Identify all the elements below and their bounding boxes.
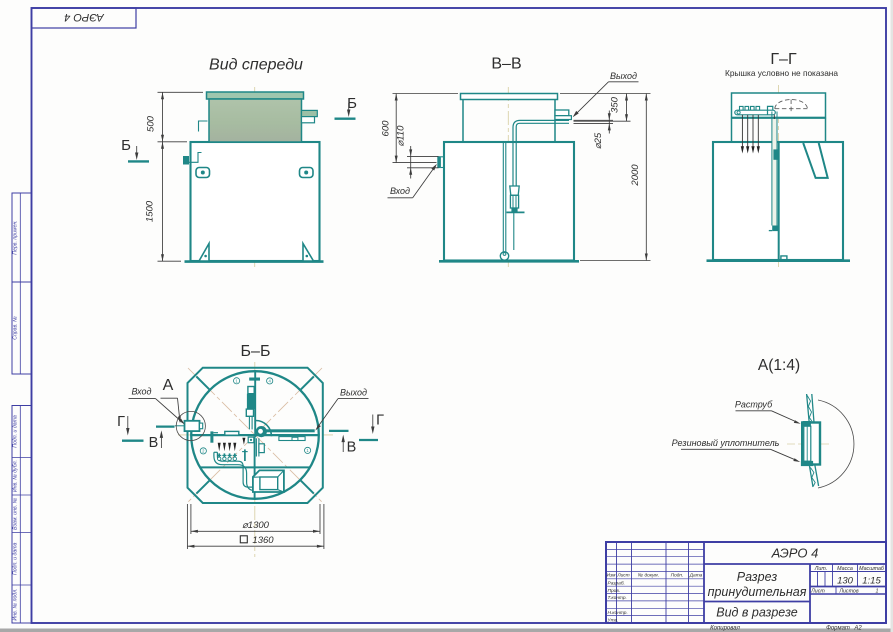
svg-text:Утв.: Утв. — [608, 617, 619, 623]
svg-text:Разрез: Разрез — [737, 570, 778, 584]
svg-text:Н.контр.: Н.контр. — [608, 610, 628, 616]
svg-text:Масса: Масса — [837, 566, 853, 572]
svg-text:1500: 1500 — [145, 200, 156, 222]
svg-text:Разраб.: Разраб. — [608, 581, 625, 587]
svg-text:Вид спереди: Вид спереди — [209, 57, 303, 74]
svg-text:Б–Б: Б–Б — [241, 343, 271, 360]
svg-text:Изм: Изм — [607, 573, 617, 579]
svg-text:А: А — [163, 377, 174, 394]
svg-text:Резиновый уплотнитель: Резиновый уплотнитель — [672, 438, 780, 448]
svg-text:Г: Г — [117, 414, 125, 430]
svg-text:Подп. и дата: Подп. и дата — [12, 542, 18, 575]
svg-text:Вход: Вход — [131, 387, 151, 397]
svg-text:600: 600 — [381, 120, 392, 137]
svg-text:Б: Б — [121, 137, 131, 154]
svg-text:350: 350 — [610, 96, 621, 113]
svg-text:1360: 1360 — [252, 535, 274, 546]
svg-text:130: 130 — [837, 576, 854, 587]
svg-text:Взам. инв. №: Взам. инв. № — [12, 497, 18, 529]
svg-text:Справ. №: Справ. № — [12, 316, 18, 340]
svg-text:⌀110: ⌀110 — [396, 125, 407, 147]
svg-text:В–В: В–В — [491, 56, 521, 73]
svg-text:Перв. примен.: Перв. примен. — [12, 220, 18, 254]
svg-text:принудительная: принудительная — [708, 585, 807, 599]
svg-text:А(1:4): А(1:4) — [758, 357, 800, 374]
svg-text:АЭРО 4: АЭРО 4 — [771, 546, 819, 561]
svg-text:Дата: Дата — [689, 573, 703, 579]
svg-text:АЭРО 4: АЭРО 4 — [64, 11, 105, 23]
svg-text:Лист: Лист — [616, 573, 629, 579]
svg-text:Т.контр.: Т.контр. — [608, 595, 627, 601]
svg-text:В: В — [347, 440, 357, 456]
svg-text:Инв. № подл.: Инв. № подл. — [12, 588, 18, 620]
svg-text:№ докум.: № докум. — [638, 573, 659, 579]
svg-text:Формат: Формат — [826, 626, 850, 632]
svg-text:Крышка условно не показана: Крышка условно не показана — [725, 68, 838, 78]
svg-text:Вход: Вход — [390, 186, 410, 196]
svg-text:2000: 2000 — [630, 164, 641, 187]
svg-text:Листов: Листов — [838, 589, 859, 595]
svg-text:500: 500 — [146, 115, 157, 132]
svg-text:Вид в разрезе: Вид в разрезе — [716, 606, 798, 620]
svg-text:Копировал: Копировал — [710, 626, 740, 632]
svg-text:1:15: 1:15 — [862, 576, 881, 587]
svg-text:Выход: Выход — [610, 71, 637, 81]
svg-text:Выход: Выход — [340, 388, 367, 398]
svg-text:Г–Г: Г–Г — [770, 51, 797, 68]
svg-text:⌀25: ⌀25 — [593, 132, 604, 149]
svg-text:Лит.: Лит. — [814, 566, 827, 572]
svg-text:Масштаб: Масштаб — [859, 566, 885, 572]
svg-text:Подп. и дата: Подп. и дата — [12, 415, 18, 448]
svg-text:В: В — [149, 435, 159, 451]
svg-text:Г: Г — [376, 413, 384, 429]
svg-text:Подп.: Подп. — [671, 573, 684, 579]
svg-text:Лист: Лист — [810, 589, 825, 595]
svg-text:Пров.: Пров. — [608, 588, 621, 594]
svg-text:А2: А2 — [853, 626, 862, 632]
svg-text:Раструб: Раструб — [735, 400, 773, 410]
svg-text:1: 1 — [876, 589, 879, 595]
svg-text:Инв. № дубл.: Инв. № дубл. — [12, 460, 18, 492]
svg-text:⌀1300: ⌀1300 — [242, 520, 270, 531]
